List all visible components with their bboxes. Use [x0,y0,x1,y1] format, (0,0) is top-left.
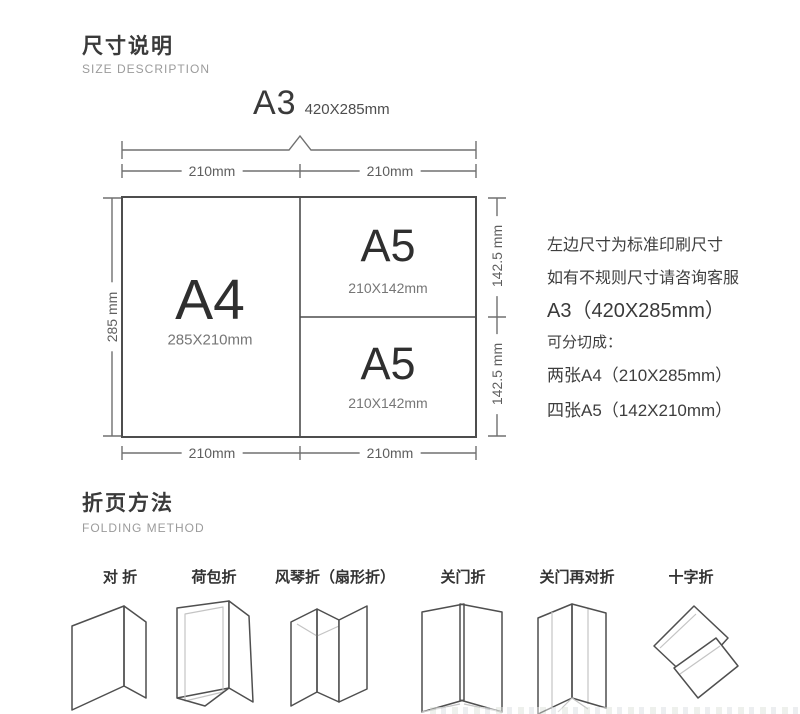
bottom-dimension-line [122,446,476,460]
a5-top-label: A5 [360,220,415,272]
dimension-diagram [90,80,510,470]
folding-section-title: 折页方法 [82,487,174,517]
a4-label: A4 [175,267,245,333]
cutoff-watermark [430,707,800,714]
a5-bottom-label: A5 [360,338,415,390]
fold-label-cross: 十字折 [668,566,713,587]
a4-size-label: 285X210mm [167,332,252,349]
fold-label-wallet: 荷包折 [191,566,236,587]
fold-label-gate-half: 关门再对折 [539,566,614,587]
dim-left-side: 285 mm [104,283,120,352]
dim-bottom-right: 210mm [360,445,421,461]
dim-right-bottom: 142.5 mm [489,334,505,414]
size-section-subtitle: SIZE DESCRIPTION [82,62,210,76]
dim-top-left: 210mm [182,163,243,179]
note-line-5: 两张A4（210X285mm） [547,361,739,386]
gate-fold-icon [412,596,512,714]
cross-fold-icon [640,596,740,714]
size-notes: 左边尺寸为标准印刷尺寸 如有不规则尺寸请咨询客服 A3（420X285mm） 可… [547,231,739,421]
a5-top-size-label: 210X142mm [348,280,427,296]
dim-bottom-left: 210mm [182,445,243,461]
note-line-2: 如有不规则尺寸请咨询客服 [547,264,739,288]
note-line-4: 可分切成： [547,331,739,352]
a3-bracket-line [122,136,476,159]
fold-label-half: 对 折 [103,566,137,587]
dim-right-top: 142.5 mm [489,216,505,296]
a5-bottom-size-label: 210X142mm [348,395,427,411]
fold-label-gate: 关门折 [440,566,485,587]
wallet-fold-icon [165,596,265,714]
note-line-6: 四张A5（142X210mm） [547,396,739,421]
page: 尺寸说明 SIZE DESCRIPTION A3 420X285mm 210mm… [0,0,800,714]
gate-half-fold-icon [528,596,628,714]
top-dimension-line [122,164,476,178]
size-section-title: 尺寸说明 [82,30,174,60]
accordion-fold-icon [283,596,383,714]
note-line-3: A3（420X285mm） [547,294,739,323]
fold-label-accordion: 风琴折（扇形折） [275,566,395,587]
note-line-1: 左边尺寸为标准印刷尺寸 [547,231,739,255]
half-fold-icon [62,596,162,714]
folding-section-subtitle: FOLDING METHOD [82,521,205,535]
dim-top-right: 210mm [360,163,421,179]
